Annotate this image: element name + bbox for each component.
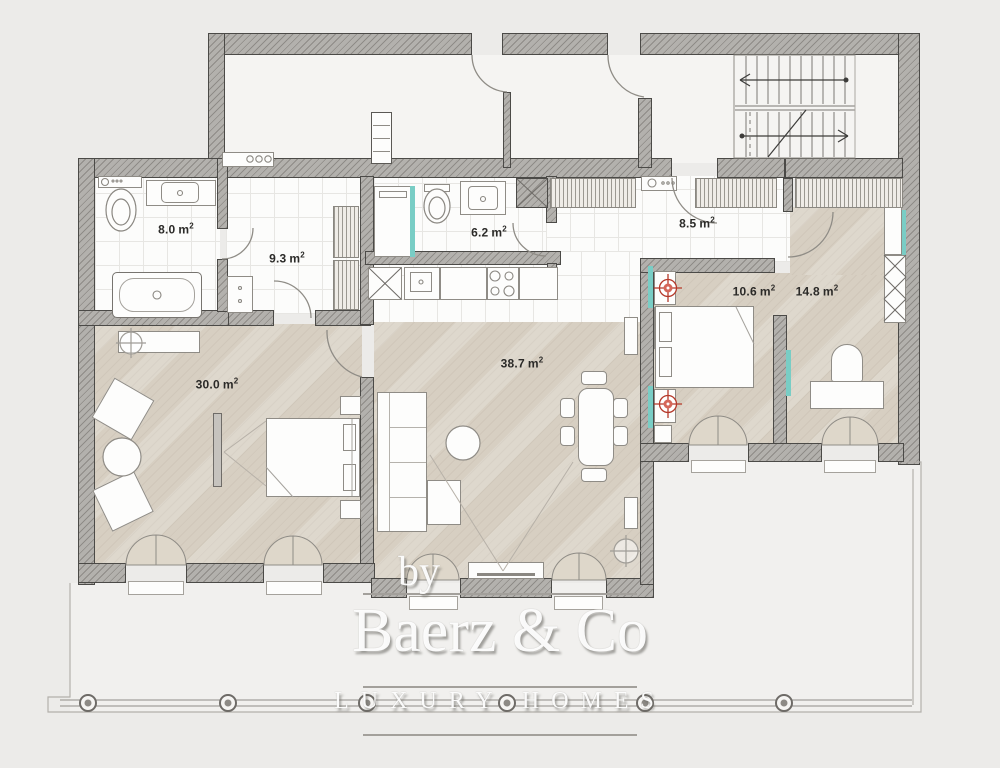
wall-shelf bbox=[654, 425, 672, 443]
room-label-living-room: 38.7m2 bbox=[501, 356, 544, 371]
corridor-floor bbox=[222, 55, 902, 163]
wardrobe-icon bbox=[795, 178, 903, 208]
door-sill bbox=[266, 581, 322, 595]
shelf-line bbox=[373, 151, 390, 152]
toilet-cistern bbox=[98, 176, 142, 188]
wall bbox=[717, 158, 785, 178]
wall-shelf bbox=[624, 317, 638, 355]
watermark-by: by bbox=[398, 548, 440, 596]
wall bbox=[502, 33, 608, 55]
nightstand bbox=[340, 396, 361, 415]
wardrobe-icon bbox=[695, 178, 777, 208]
watermark-tagline: LUXURY HOMES bbox=[0, 688, 1000, 715]
pillow bbox=[343, 464, 356, 491]
sofa-seat-line bbox=[390, 497, 426, 498]
dining-chair bbox=[560, 398, 575, 418]
sink-basin bbox=[161, 182, 199, 203]
kitchen-sink-basin bbox=[410, 272, 432, 292]
wall bbox=[360, 377, 374, 567]
wall bbox=[208, 33, 225, 168]
desk bbox=[810, 381, 884, 409]
wardrobe-icon bbox=[333, 206, 359, 258]
sofa-seat-line bbox=[390, 427, 426, 428]
dining-chair bbox=[581, 371, 607, 385]
wall bbox=[323, 563, 375, 583]
pillow bbox=[659, 312, 672, 342]
window-glass bbox=[648, 266, 653, 308]
door-sill bbox=[824, 460, 876, 473]
radiator-box bbox=[654, 271, 676, 305]
bathtub-inner bbox=[119, 278, 195, 312]
wall-shelf bbox=[624, 497, 638, 529]
wall bbox=[785, 158, 903, 178]
shower-glass bbox=[410, 186, 415, 257]
wall-tv bbox=[460, 578, 552, 598]
toilet-cistern bbox=[424, 184, 450, 192]
nightstand bbox=[340, 500, 361, 519]
room-label-bedroom-2: 10.6m2 bbox=[733, 284, 776, 299]
wall bbox=[78, 158, 95, 585]
wall bbox=[773, 315, 787, 445]
ventilation-shaft bbox=[516, 178, 548, 208]
window-glass bbox=[648, 386, 653, 428]
watermark-rule-bottom bbox=[363, 734, 637, 736]
wall bbox=[748, 443, 822, 462]
wall bbox=[186, 563, 264, 583]
tv-screen-line bbox=[477, 573, 535, 576]
shower-tray bbox=[379, 191, 407, 198]
floor-plan-canvas: 8.0m2 9.3m2 6.2m2 8.5m2 30.0m2 38.7m2 10… bbox=[0, 0, 1000, 768]
corridor-partition bbox=[638, 98, 652, 168]
sofa-chaise bbox=[427, 480, 461, 525]
kitchen-counter bbox=[440, 267, 487, 300]
wall bbox=[878, 443, 904, 462]
wall bbox=[78, 563, 126, 583]
room-label-office: 14.8m2 bbox=[796, 284, 839, 299]
wall-shelf bbox=[884, 207, 902, 255]
wall bbox=[640, 443, 689, 462]
room-label-bathroom-1: 8.0m2 bbox=[158, 222, 194, 237]
corridor-partition bbox=[503, 92, 511, 168]
wall bbox=[640, 33, 904, 55]
wall-stub bbox=[783, 178, 793, 212]
window-glass bbox=[786, 350, 791, 396]
room-label-hallway: 9.3m2 bbox=[269, 251, 305, 266]
dining-chair bbox=[613, 398, 628, 418]
room-label-bathroom-2: 6.2m2 bbox=[471, 225, 507, 240]
dining-chair bbox=[581, 468, 607, 482]
door-sill bbox=[128, 581, 184, 595]
kitchen-counter bbox=[519, 267, 558, 300]
dining-chair bbox=[613, 426, 628, 446]
dining-table bbox=[578, 388, 614, 466]
tv-panel bbox=[213, 413, 222, 487]
wall bbox=[217, 158, 228, 229]
shelf-line bbox=[373, 138, 390, 139]
shelf-line bbox=[373, 125, 390, 126]
desk-chair bbox=[831, 344, 863, 382]
sink-basin bbox=[468, 186, 498, 210]
dining-chair bbox=[560, 426, 575, 446]
door-sill bbox=[691, 460, 746, 473]
pillow bbox=[659, 347, 672, 377]
room-label-entrance-hall: 8.5m2 bbox=[679, 216, 715, 231]
radiator-box bbox=[654, 389, 676, 423]
wardrobe-icon bbox=[333, 260, 359, 310]
room-label-bedroom-1: 30.0m2 bbox=[196, 377, 239, 392]
tv-stand bbox=[468, 562, 544, 579]
fridge bbox=[368, 267, 402, 300]
hall-sink-unit bbox=[641, 176, 677, 191]
wall bbox=[208, 33, 472, 55]
stove bbox=[487, 267, 519, 300]
corridor-kitchenette bbox=[222, 152, 274, 167]
wardrobe-x bbox=[884, 255, 906, 323]
pillow bbox=[343, 424, 356, 451]
hall-cabinet bbox=[227, 276, 253, 313]
console-table bbox=[118, 331, 200, 353]
sofa-seat-line bbox=[390, 462, 426, 463]
watermark-brand: Baerz & Co bbox=[0, 596, 1000, 667]
terrace-floor-right bbox=[654, 462, 921, 587]
wardrobe-icon bbox=[550, 178, 636, 208]
